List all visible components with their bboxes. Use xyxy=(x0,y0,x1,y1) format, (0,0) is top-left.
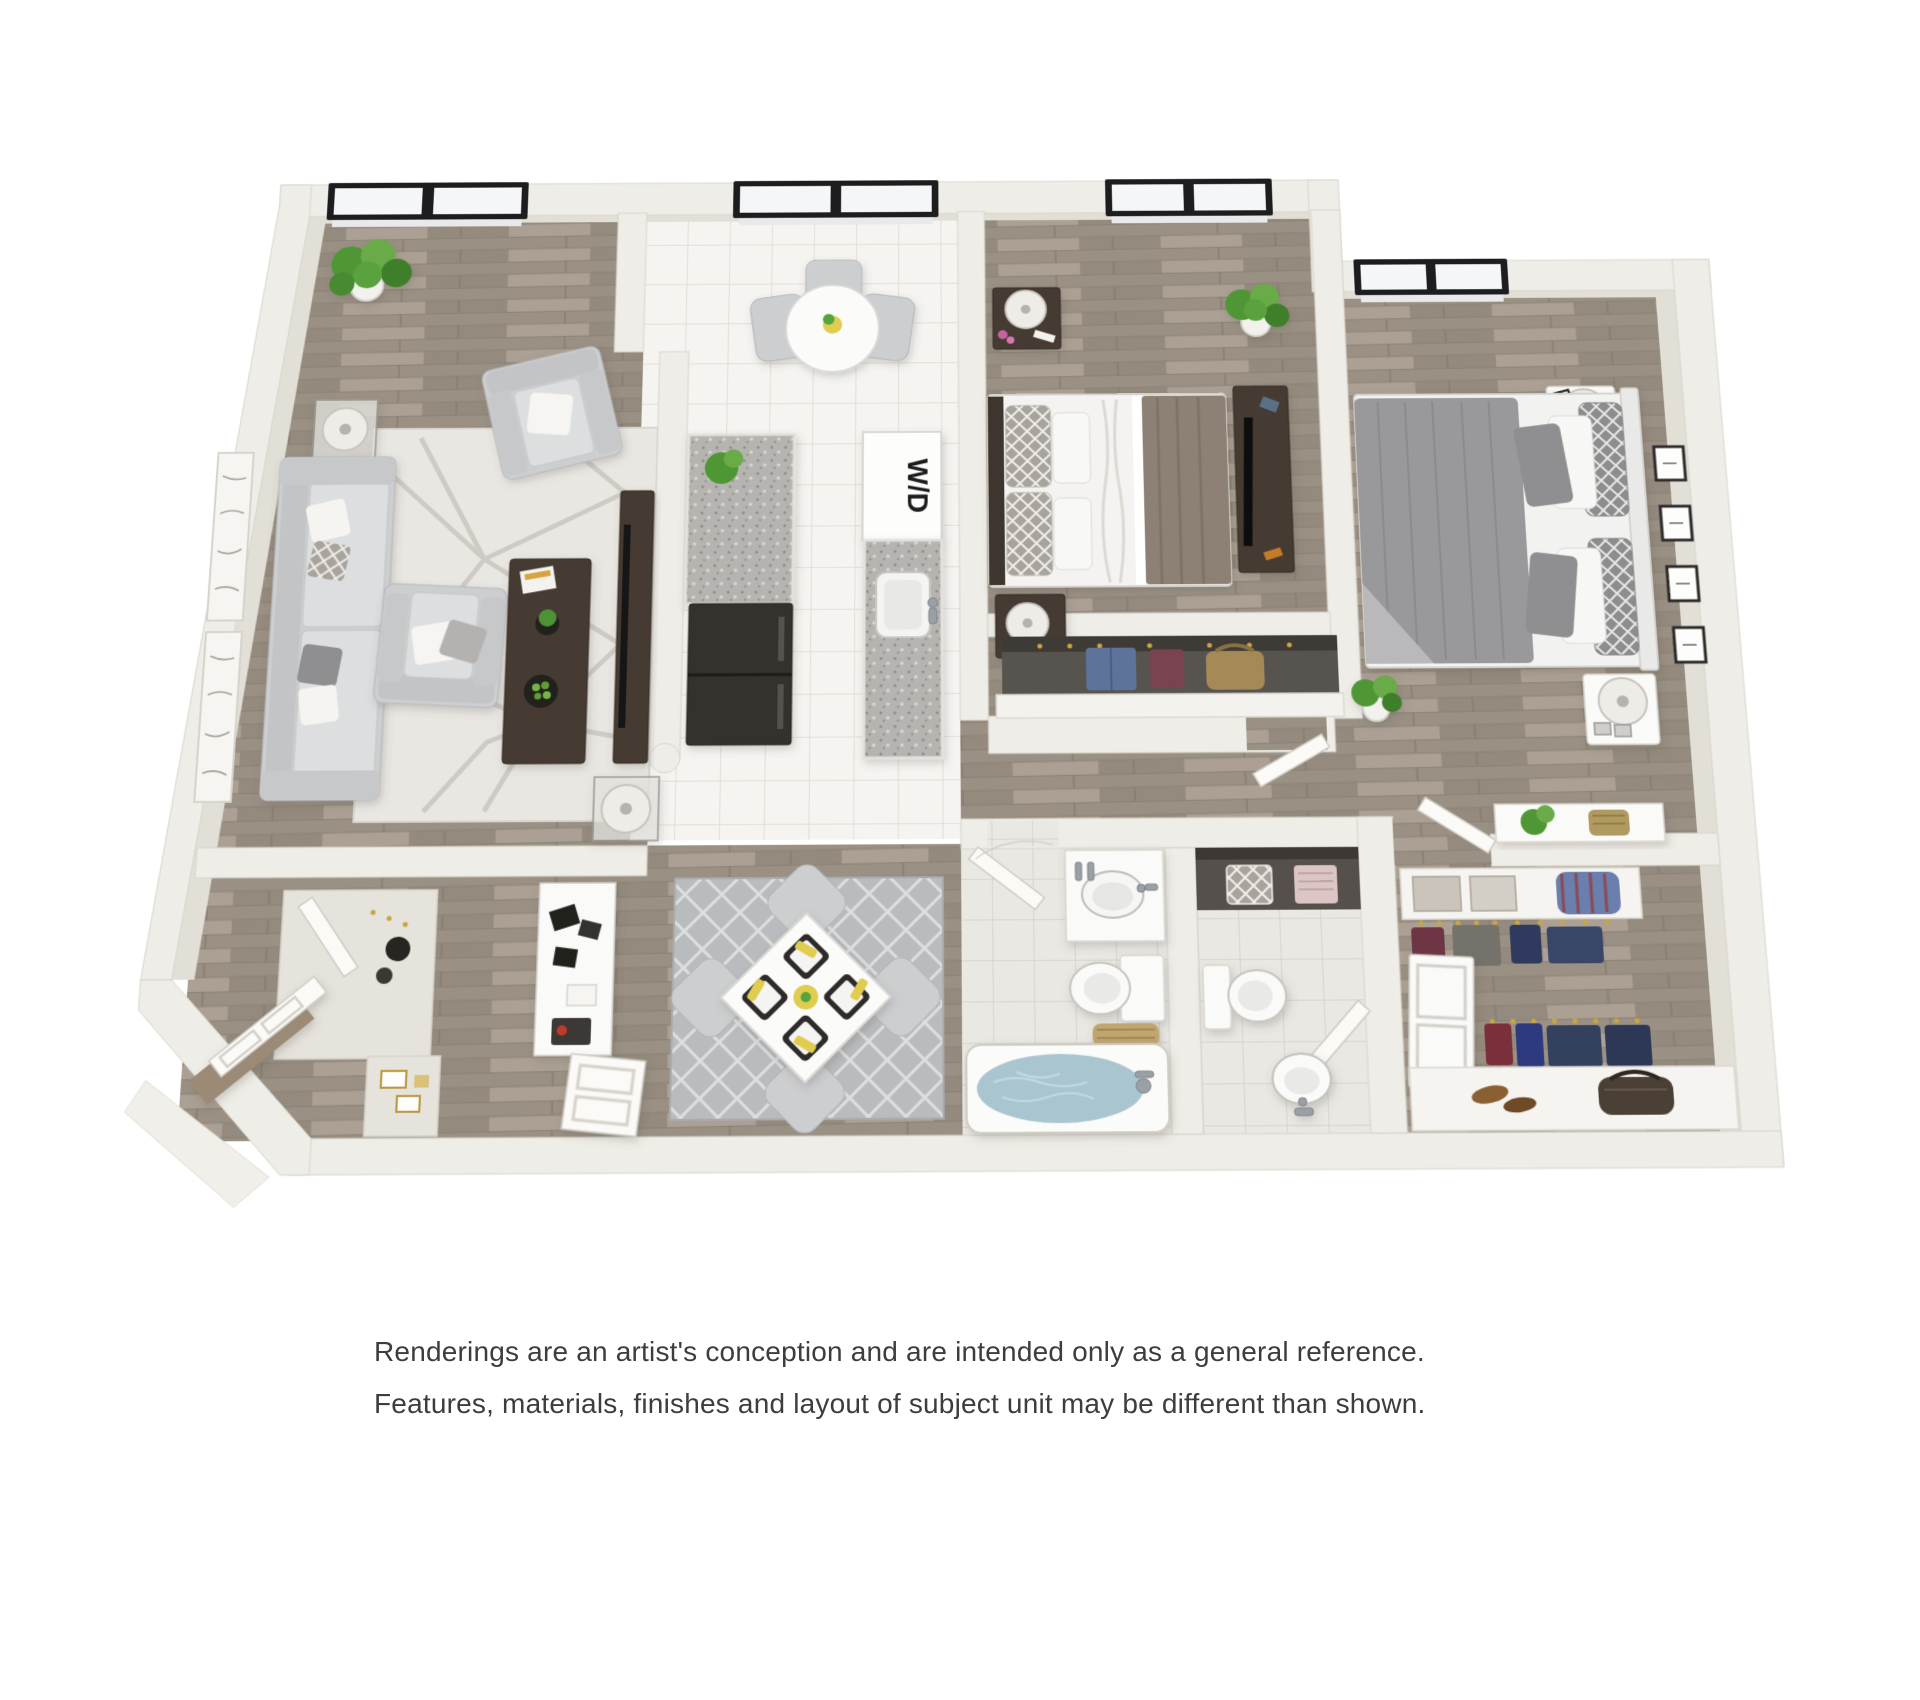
entry-cubby xyxy=(364,1056,441,1136)
tv-console xyxy=(613,491,654,764)
handbag xyxy=(1597,1072,1675,1115)
side-table-lamp-bottom xyxy=(593,777,660,841)
washer-dryer: W/D xyxy=(863,432,942,541)
living-kitchen-stub xyxy=(614,213,647,352)
disclaimer-line-2: Features, materials, finishes and layout… xyxy=(374,1378,1624,1430)
entry-inner-door xyxy=(561,1054,645,1137)
kitchen-bed1-wall xyxy=(958,212,989,721)
kitchen-window xyxy=(733,180,939,225)
linen-shelf xyxy=(1195,847,1361,910)
bedroom2-window xyxy=(1353,259,1509,303)
tv-dresser xyxy=(1233,386,1295,572)
side-table-lamp-top xyxy=(312,400,378,459)
closet-top-shelf xyxy=(1400,868,1642,920)
disclaimer-line-1: Renderings are an artist's conception an… xyxy=(374,1326,1624,1378)
counter-left xyxy=(685,434,794,603)
bed2 xyxy=(1354,388,1659,672)
living-window xyxy=(326,182,529,227)
washer-dryer-label: W/D xyxy=(901,459,934,513)
bedroom1-closet xyxy=(996,635,1345,718)
vanity-sink xyxy=(1065,850,1165,942)
bedroom1-window xyxy=(1105,179,1273,224)
closet-console xyxy=(1494,803,1665,842)
refrigerator xyxy=(686,603,792,745)
bathtub xyxy=(966,1044,1170,1133)
nightstand-top xyxy=(993,288,1061,350)
entry-console xyxy=(534,883,616,1056)
nightstand-b2-bottom xyxy=(1583,674,1660,745)
entry-closet xyxy=(274,890,438,1059)
floor-plan: W/D xyxy=(108,162,1816,1216)
armchair-bottom xyxy=(373,583,508,708)
kitchen-sink-counter xyxy=(864,540,943,758)
entry-top-wall xyxy=(195,846,647,878)
disclaimer: Renderings are an artist's conception an… xyxy=(374,1326,1624,1430)
page: { "plan": { "type": "3d-rendered-floor-p… xyxy=(0,0,1920,1700)
sofa xyxy=(259,457,396,801)
coffee-table xyxy=(502,559,591,764)
bed1 xyxy=(988,394,1232,587)
towel-basket xyxy=(1092,1023,1159,1046)
bottom-wall xyxy=(288,1131,1784,1175)
